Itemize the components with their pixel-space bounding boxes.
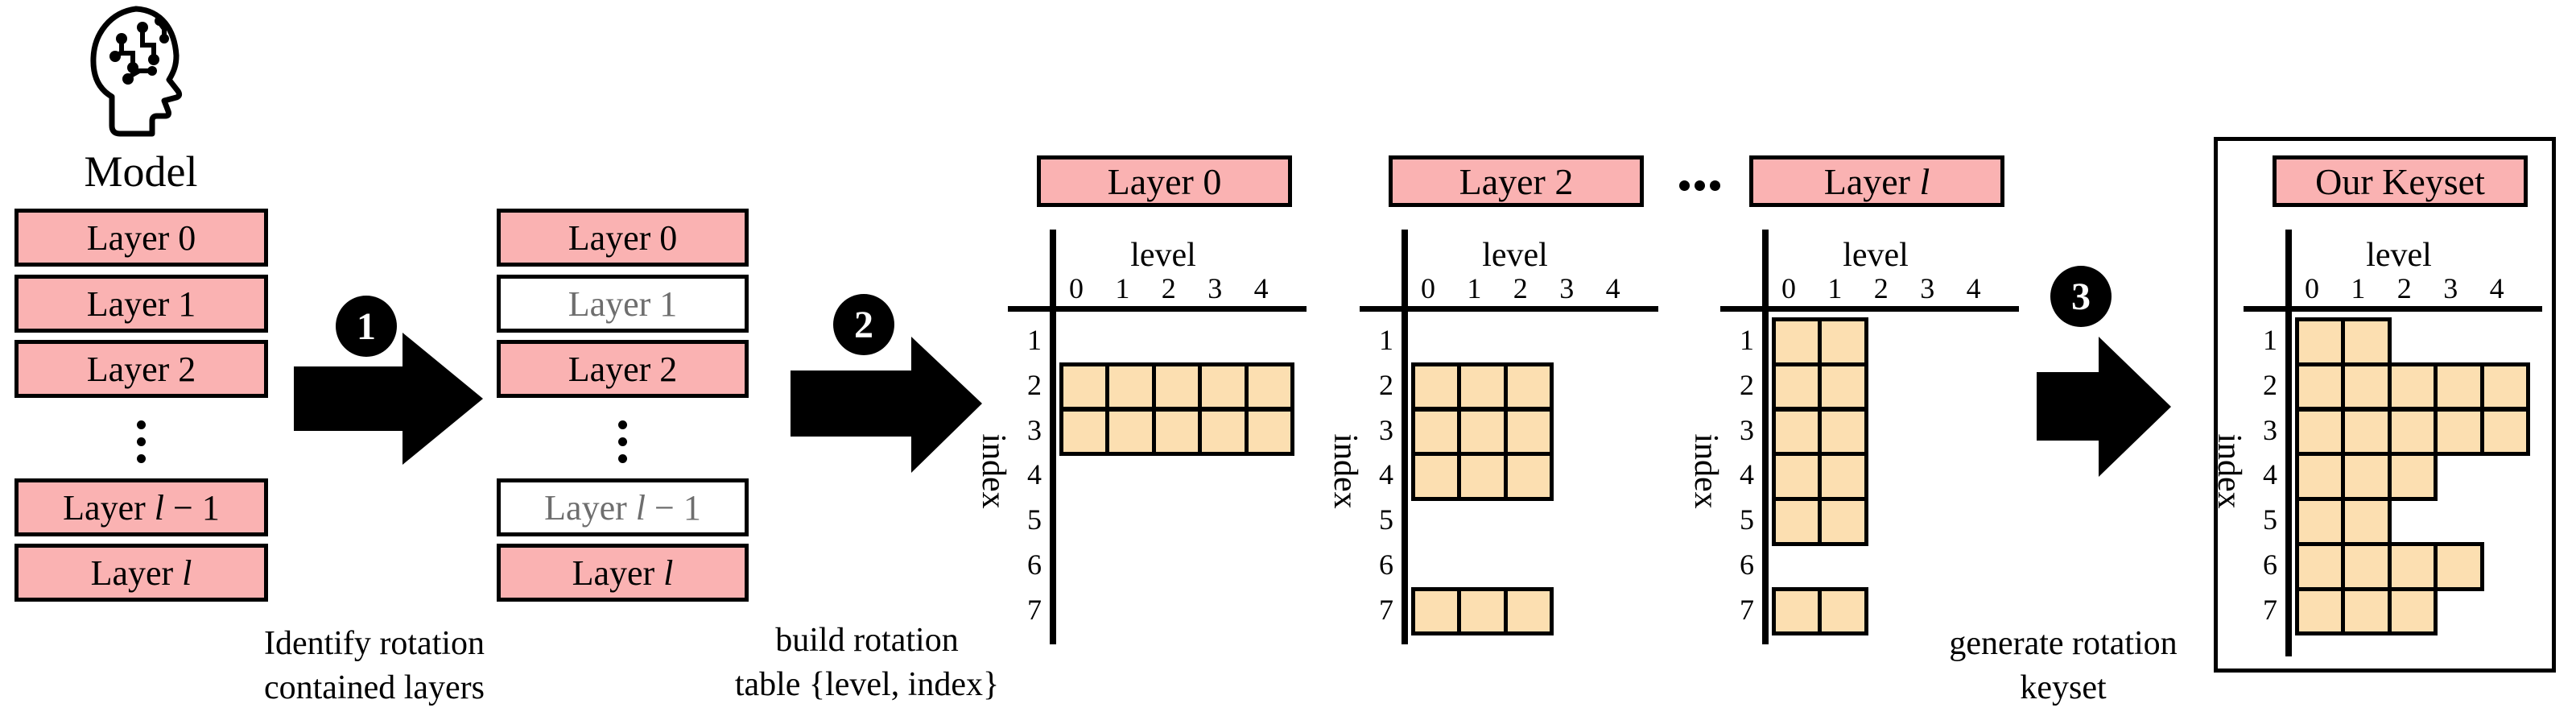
layer-2-table-col-label-1: 1 (1454, 271, 1494, 305)
our-keyset-table-cell-r2-c0 (2295, 362, 2345, 412)
model-layer-label-math: l (155, 487, 164, 528)
identified-layer-label-math: l (636, 487, 646, 528)
layer-0-table-row-label-7: 7 (1001, 593, 1042, 627)
identified-layer-label-suffix: − 1 (646, 487, 701, 528)
layer-2-table-col-label-2: 2 (1501, 271, 1541, 305)
layer-2-table-col-label-3: 3 (1546, 271, 1587, 305)
our-keyset-table-title-prefix: Our Keyset (2315, 160, 2485, 203)
our-keyset-table-index-label: index (2211, 419, 2247, 524)
model-layer-box-1: Layer 1 (14, 275, 268, 333)
our-keyset-table-row-label-1: 1 (2237, 323, 2277, 357)
our-keyset-table-col-label-2: 2 (2384, 271, 2425, 305)
layer-l-table-header: Layer l (1749, 155, 2004, 207)
step-3-caption: generate rotation keyset (1870, 622, 2256, 710)
layer-l-table-index-label: index (1688, 419, 1724, 524)
layer-l-table-cell-r7-c1 (1818, 587, 1868, 636)
step-2-caption-line2: table {level, index} (674, 663, 1060, 707)
our-keyset-table-row-label-6: 6 (2237, 548, 2277, 582)
layer-2-table-cell-r2-c1 (1457, 362, 1507, 412)
our-keyset-table-cell-r7-c1 (2341, 587, 2391, 636)
vertical-ellipsis-icon (137, 420, 146, 463)
our-keyset-table-cell-r2-c2 (2388, 362, 2438, 412)
layer-2-table-cell-r2-c0 (1411, 362, 1461, 412)
layer-l-table-cell-r2-c1 (1818, 362, 1868, 412)
step-2-arrow-icon (791, 337, 982, 473)
layer-2-table-cell-r7-c2 (1504, 587, 1554, 636)
our-keyset-table-col-label-3: 3 (2430, 271, 2471, 305)
layer-l-table-x-axis-line (1720, 306, 2019, 312)
model-layer-label-suffix: − 1 (164, 487, 220, 528)
identified-layer-box-4: Layer l − 1 (497, 478, 749, 536)
layer-l-table-col-label-0: 0 (1769, 271, 1809, 305)
brain-circuit-head-icon (83, 3, 202, 148)
our-keyset-table-cell-r4-c2 (2388, 452, 2438, 501)
our-keyset-table-cell-r1-c1 (2341, 317, 2391, 366)
model-layer-box-4: Layer l − 1 (14, 478, 268, 536)
step-1-caption-line2: contained layers (205, 666, 543, 710)
layer-2-table-cell-r3-c1 (1457, 408, 1507, 457)
layer-2-table-col-label-4: 4 (1593, 271, 1633, 305)
our-keyset-table-cell-r7-c2 (2388, 587, 2438, 636)
layer-2-table-header: Layer 2 (1389, 155, 1644, 207)
layer-0-table-row-label-1: 1 (1001, 323, 1042, 357)
layer-l-table-col-label-2: 2 (1861, 271, 1901, 305)
layer-l-table-cell-r5-c0 (1772, 497, 1822, 546)
layer-l-table-cell-r4-c0 (1772, 452, 1822, 501)
our-keyset-table-row-label-2: 2 (2237, 368, 2277, 402)
layer-2-table-level-label: level (1435, 238, 1596, 273)
layer-2-table-row-label-6: 6 (1353, 548, 1393, 582)
layer-l-table-cell-r1-c1 (1818, 317, 1868, 366)
layer-0-table-row-label-2: 2 (1001, 368, 1042, 402)
layer-2-table-title-prefix: Layer 2 (1459, 160, 1574, 203)
layer-0-table-header: Layer 0 (1037, 155, 1292, 207)
model-layer-label-prefix: Layer 0 (87, 217, 196, 259)
layer-l-table-cell-r7-c0 (1772, 587, 1822, 636)
our-keyset-table-cell-r6-c3 (2434, 542, 2483, 591)
identified-layer-label-prefix: Layer 2 (568, 349, 678, 390)
layer-0-table-cell-r3-c1 (1105, 408, 1155, 457)
step-1-caption-line1: Identify rotation (205, 622, 543, 666)
layer-2-table-cell-r4-c2 (1504, 452, 1554, 501)
layer-0-table-cell-r3-c2 (1152, 408, 1202, 457)
our-keyset-table-cell-r5-c0 (2295, 497, 2345, 546)
layer-0-table-cell-r2-c2 (1152, 362, 1202, 412)
our-keyset-table-cell-r3-c3 (2434, 408, 2483, 457)
layer-2-table-row-label-1: 1 (1353, 323, 1393, 357)
step-2-caption: build rotation table {level, index} (674, 619, 1060, 707)
step-1-badge: 1 (336, 296, 397, 357)
our-keyset-table-cell-r7-c0 (2295, 587, 2345, 636)
layer-l-table-cell-r4-c1 (1818, 452, 1868, 501)
layer-l-table-row-label-7: 7 (1714, 593, 1754, 627)
layer-2-table-cell-r4-c1 (1457, 452, 1507, 501)
layer-0-table-cell-r2-c3 (1198, 362, 1248, 412)
layer-0-table-cell-r2-c1 (1105, 362, 1155, 412)
our-keyset-table-cell-r6-c1 (2341, 542, 2391, 591)
layer-l-table-level-label: level (1795, 238, 1956, 273)
layer-2-table-row-label-7: 7 (1353, 593, 1393, 627)
our-keyset-table-cell-r1-c0 (2295, 317, 2345, 366)
our-keyset-table-cell-r3-c4 (2480, 408, 2530, 457)
layer-0-table-x-axis-line (1008, 306, 1307, 312)
layer-2-table-y-axis-line (1402, 230, 1408, 644)
identified-layer-label-prefix: Layer (572, 553, 664, 594)
our-keyset-table-cell-r6-c2 (2388, 542, 2438, 591)
layer-0-table-col-label-2: 2 (1149, 271, 1189, 305)
identified-layer-label-math: l (663, 553, 673, 594)
layer-2-table-cell-r3-c0 (1411, 408, 1461, 457)
layer-2-table-x-axis-line (1360, 306, 1658, 312)
layer-l-table-col-label-4: 4 (1954, 271, 1994, 305)
layer-l-table-y-axis-line (1762, 230, 1769, 644)
vertical-ellipsis-icon (618, 420, 627, 463)
step-3-caption-line1: generate rotation (1870, 622, 2256, 666)
layer-l-table-title-prefix: Layer (1824, 160, 1920, 203)
layer-l-table-cell-r3-c1 (1818, 408, 1868, 457)
layer-l-table-cell-r1-c0 (1772, 317, 1822, 366)
layer-2-table-cell-r7-c1 (1457, 587, 1507, 636)
model-layer-label-prefix: Layer (91, 553, 183, 594)
model-label: Model (44, 147, 237, 193)
layer-l-table-cell-r2-c0 (1772, 362, 1822, 412)
our-keyset-table-cell-r2-c1 (2341, 362, 2391, 412)
step-1-arrow-icon (294, 333, 483, 465)
model-layer-label-prefix: Layer (63, 487, 155, 528)
layer-2-table-col-label-0: 0 (1408, 271, 1448, 305)
layer-l-table-cell-r5-c1 (1818, 497, 1868, 546)
model-layer-label-prefix: Layer 2 (87, 349, 196, 390)
model-layer-box-5: Layer l (14, 544, 268, 602)
our-keyset-table-y-axis-line (2285, 230, 2292, 656)
layer-2-table-index-label: index (1327, 419, 1363, 524)
layer-0-table-col-label-3: 3 (1195, 271, 1235, 305)
our-keyset-table-level-label: level (2318, 238, 2479, 273)
layer-0-table-cell-r3-c3 (1198, 408, 1248, 457)
step-3-caption-line2: keyset (1870, 666, 2256, 710)
layer-0-table-col-label-0: 0 (1056, 271, 1096, 305)
our-keyset-table-col-label-1: 1 (2338, 271, 2378, 305)
our-keyset-table-col-label-0: 0 (2292, 271, 2332, 305)
layer-0-table-cell-r3-c4 (1245, 408, 1294, 457)
layer-2-table-cell-r3-c2 (1504, 408, 1554, 457)
layer-l-table-row-label-2: 2 (1714, 368, 1754, 402)
our-keyset-table-cell-r2-c3 (2434, 362, 2483, 412)
layer-2-table-cell-r7-c0 (1411, 587, 1461, 636)
layer-0-table-title-prefix: Layer 0 (1108, 160, 1222, 203)
layer-2-table-cell-r4-c0 (1411, 452, 1461, 501)
layer-0-table-y-axis-line (1050, 230, 1056, 644)
model-layer-label-math: l (182, 553, 192, 594)
layer-0-table-cell-r2-c0 (1059, 362, 1109, 412)
model-layer-box-0: Layer 0 (14, 209, 268, 267)
step-3-arrow-icon (2037, 337, 2171, 477)
layer-0-table-col-label-4: 4 (1241, 271, 1282, 305)
layer-2-table-row-label-2: 2 (1353, 368, 1393, 402)
our-keyset-table-row-label-7: 7 (2237, 593, 2277, 627)
our-keyset-table-cell-r4-c0 (2295, 452, 2345, 501)
layer-0-table-level-label: level (1083, 238, 1244, 273)
step-1-caption: Identify rotation contained layers (205, 622, 543, 710)
figure-canvas: Model Layer 0Layer 1Layer 2Layer l − 1La… (0, 0, 2576, 712)
model-layer-label-prefix: Layer 1 (87, 284, 196, 325)
layer-0-table-row-label-6: 6 (1001, 548, 1042, 582)
model-layer-box-2: Layer 2 (14, 340, 268, 398)
our-keyset-table-cell-r3-c0 (2295, 408, 2345, 457)
layer-l-table-title-math: l (1919, 160, 1930, 203)
our-keyset-table-cell-r5-c1 (2341, 497, 2391, 546)
layer-l-table-col-label-1: 1 (1814, 271, 1855, 305)
identified-layer-box-0: Layer 0 (497, 209, 749, 267)
identified-layer-label-prefix: Layer (544, 487, 636, 528)
identified-layer-box-1: Layer 1 (497, 275, 749, 333)
layer-0-table-cell-r2-c4 (1245, 362, 1294, 412)
layer-l-table-col-label-3: 3 (1907, 271, 1947, 305)
layer-0-table-col-label-1: 1 (1102, 271, 1142, 305)
our-keyset-table-header: Our Keyset (2273, 155, 2528, 207)
horizontal-ellipsis-icon (1679, 180, 1720, 191)
layer-0-table-cell-r3-c0 (1059, 408, 1109, 457)
layer-l-table-cell-r3-c0 (1772, 408, 1822, 457)
our-keyset-table-cell-r2-c4 (2480, 362, 2530, 412)
layer-l-table-row-label-1: 1 (1714, 323, 1754, 357)
layer-2-table-cell-r2-c2 (1504, 362, 1554, 412)
layer-l-table-row-label-6: 6 (1714, 548, 1754, 582)
our-keyset-table-col-label-4: 4 (2477, 271, 2517, 305)
identified-layer-label-prefix: Layer 1 (568, 284, 678, 325)
our-keyset-table-x-axis-line (2244, 306, 2542, 312)
identified-layer-label-prefix: Layer 0 (568, 217, 678, 259)
step-2-badge: 2 (833, 294, 894, 355)
step-3-badge: 3 (2050, 266, 2112, 327)
layer-0-table-index-label: index (976, 419, 1011, 524)
our-keyset-table-cell-r3-c1 (2341, 408, 2391, 457)
our-keyset-table-cell-r3-c2 (2388, 408, 2438, 457)
our-keyset-table-cell-r4-c1 (2341, 452, 2391, 501)
identified-layer-box-2: Layer 2 (497, 340, 749, 398)
identified-layer-box-5: Layer l (497, 544, 749, 602)
our-keyset-table-cell-r6-c0 (2295, 542, 2345, 591)
